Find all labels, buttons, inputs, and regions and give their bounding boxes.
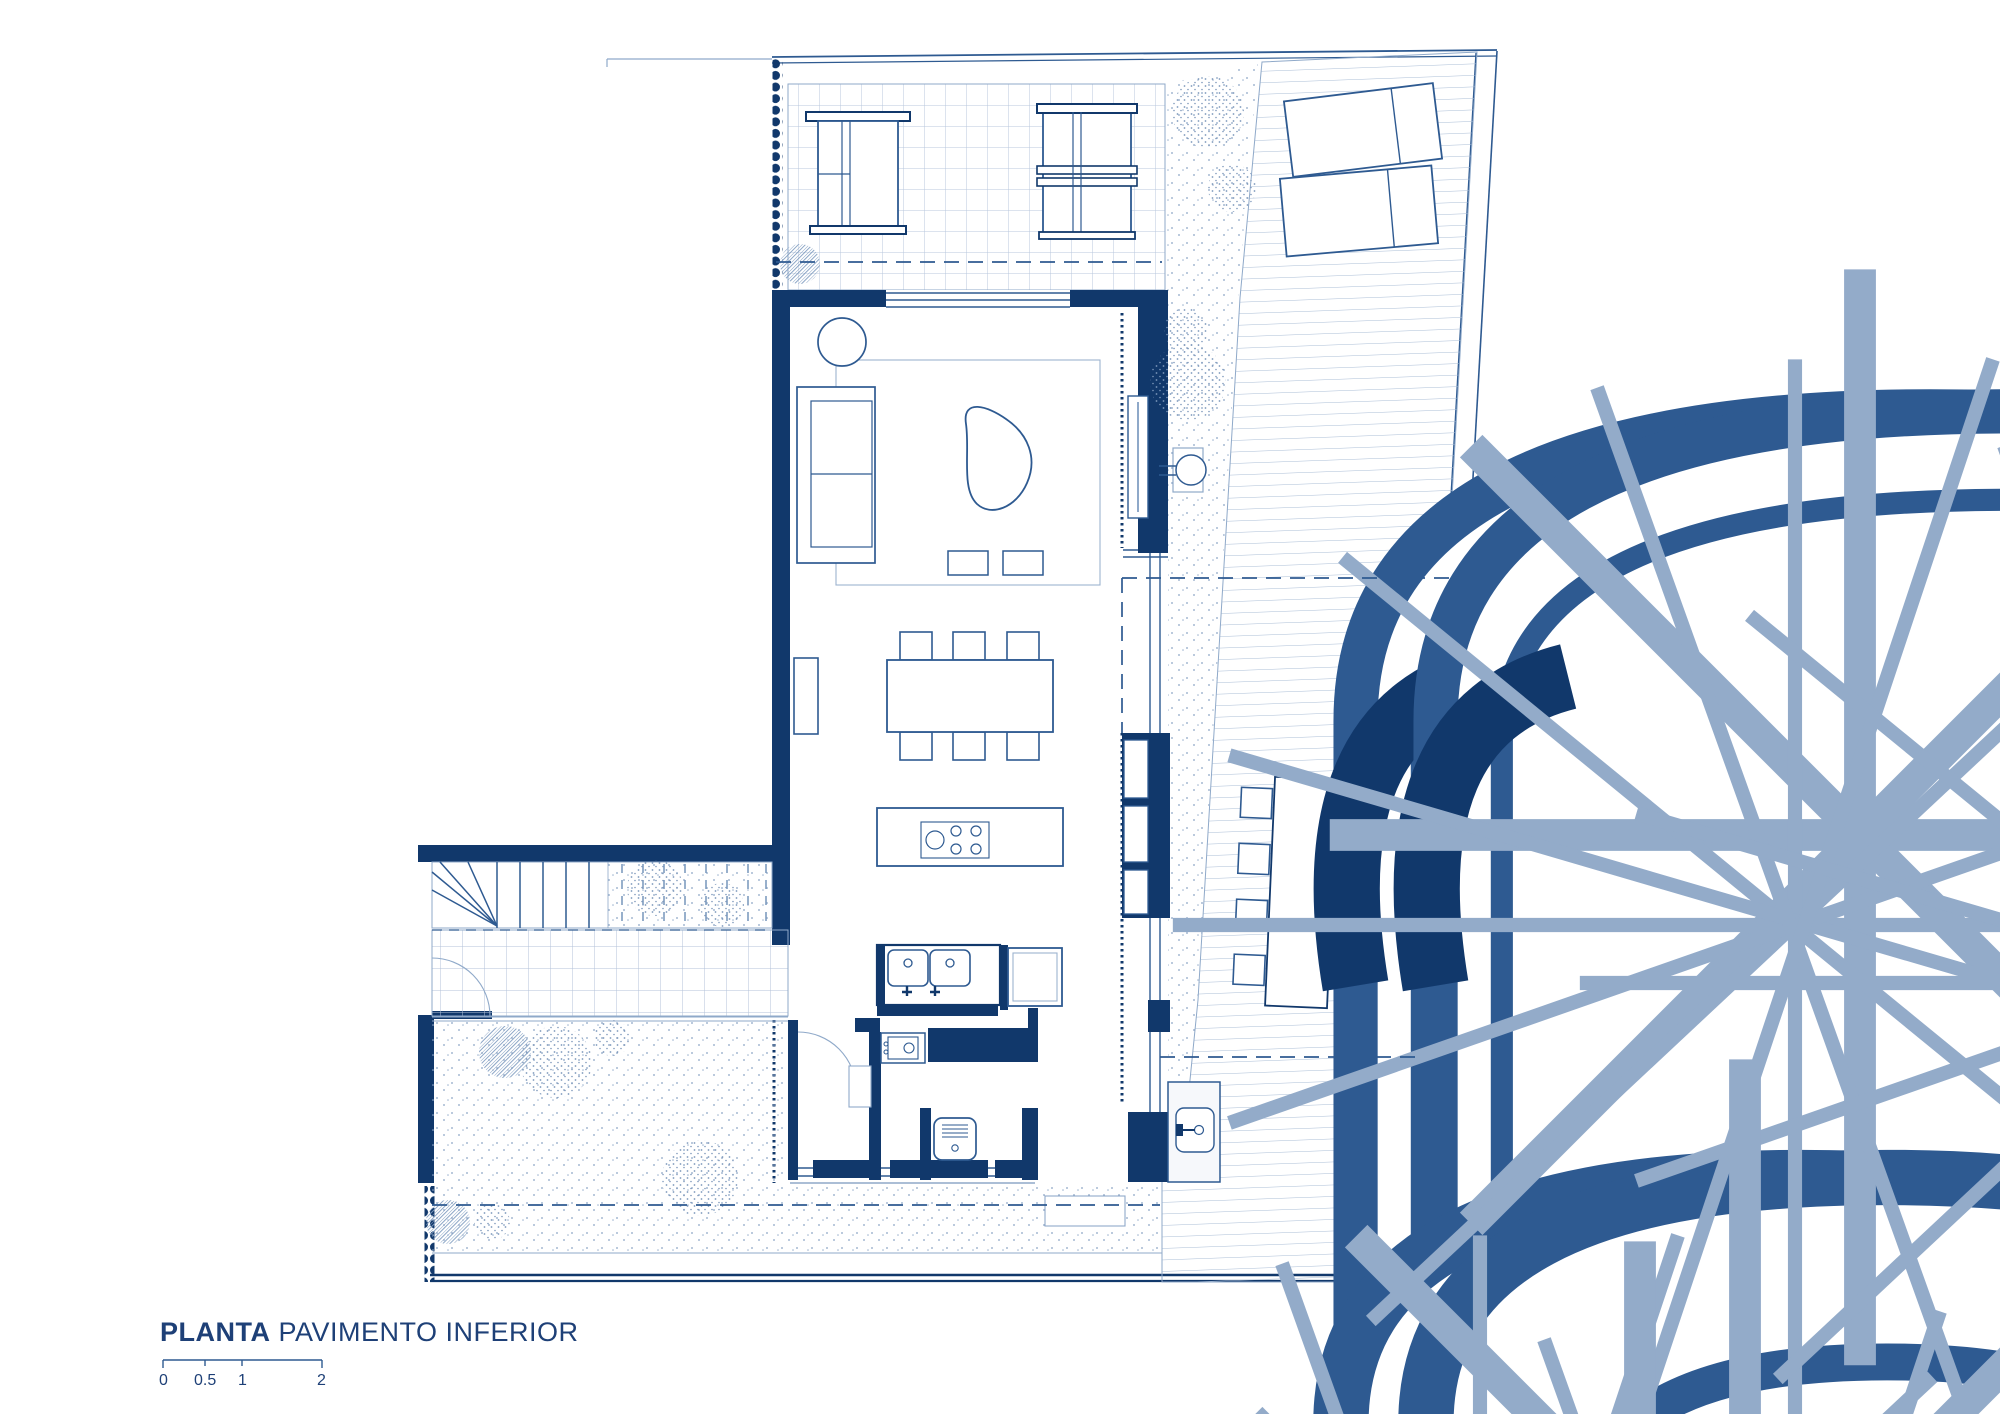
shrub [700,883,744,927]
shrub [1150,344,1226,420]
laundry-sink [881,1033,925,1063]
wall-south-2 [890,1160,988,1178]
scale-label-1: 1 [238,1372,247,1389]
drawing-title: PLANTA PAVIMENTO INFERIOR [160,1317,579,1347]
washing-machine [934,1118,976,1160]
floor-plan-sheet: PLANTA PAVIMENTO INFERIOR 0 0.5 1 2 [0,0,2000,1414]
wall-north-left [772,290,886,307]
wall-wing-north [418,845,790,862]
patio-lounge-chair-left [806,112,910,234]
tree-canopy-icon [426,1200,470,1244]
sink-left [888,950,928,986]
shrub [520,1026,592,1098]
outdoor-sink-unit [1168,1082,1220,1182]
wall-east-stub [1148,1000,1170,1032]
sofa [797,387,875,563]
shrub [627,860,683,916]
sink-right [930,950,970,986]
title-block: PLANTA PAVIMENTO INFERIOR 0 0.5 1 2 [159,1317,579,1389]
shrub [1164,308,1208,352]
title-bold: PLANTA [160,1317,271,1347]
wall-laundry-stub [1028,1008,1038,1062]
wall-bath-north-stub [855,1018,880,1032]
dining-table [887,660,1053,732]
entry-corridor [432,930,788,1016]
east-wall-window [1128,396,1148,518]
scale-bar: 0 0.5 1 2 [159,1360,326,1389]
paver-step [1045,1196,1125,1226]
cooktop [921,822,989,858]
patio-tiled [788,84,1165,290]
planter-strip [608,860,772,928]
title-regular: PAVIMENTO INFERIOR [271,1317,579,1347]
scale-label-2: 2 [317,1372,326,1389]
wall-bath-west [788,1020,798,1180]
shrub [1172,76,1244,148]
wall-se-corner [1128,1112,1170,1182]
wall-wing-west [418,1015,434,1183]
scale-label-0: 0 [159,1372,168,1389]
ottoman [948,551,988,575]
shrub [474,1204,510,1240]
shrub [594,1020,630,1056]
wall-counter-divider [1000,945,1008,1010]
refrigerator [1008,948,1062,1006]
scale-label-05: 0.5 [194,1372,216,1389]
sideboard [794,658,818,734]
tree-canopy-icon [780,244,820,284]
floor-plan-drawing: PLANTA PAVIMENTO INFERIOR 0 0.5 1 2 [0,0,2000,1414]
side-table-round [818,318,866,366]
patio-lounge-chair-right [1037,104,1137,239]
wall-laundry-block [928,1028,1028,1062]
deck-sunbed-2 [1280,166,1438,257]
kitchen-counter [877,945,1000,1005]
ottoman [1003,551,1043,575]
shrub [1208,164,1256,212]
kitchen-east-cabinets [1124,740,1148,914]
bath-shelf [849,1066,871,1107]
wall-south-1 [813,1160,873,1178]
wall-south-3 [995,1160,1033,1178]
